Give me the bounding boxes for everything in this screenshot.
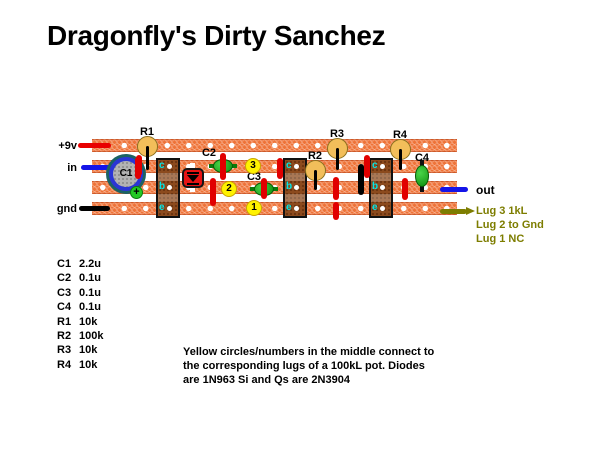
jumper-red-6 [364,155,370,178]
parts-row: C12.2u [57,258,103,272]
diode-d1 [182,168,204,188]
output-label: out [476,184,495,196]
jumper-red-4 [333,177,339,200]
q3-base-pin-label: b [372,182,378,192]
parts-row: R410k [57,359,103,373]
part-value: 10k [79,316,97,330]
pin-hole [380,164,385,169]
part-ref: C3 [57,287,79,301]
capacitor-c2-label: C2 [195,147,223,159]
part-ref: R1 [57,316,79,330]
lug3-label: Lug 3 1kL [476,205,527,218]
part-value: 0.1u [79,272,101,286]
resistor-r3-lead [336,148,339,170]
jumper-red-3 [277,158,283,179]
part-value: 0.1u [79,287,101,301]
q3-emitter-pin-label: e [372,203,378,213]
capacitor-c4-label: C4 [408,152,436,164]
capacitor-c4 [415,160,429,192]
gap-band [371,173,391,181]
transistor-q1: c b e [156,158,180,218]
resistor-r4-lead [399,149,402,170]
jumper-red-1 [135,157,141,179]
input-label: in [40,162,77,174]
part-ref: C4 [57,301,79,315]
ground-label: gnd [40,203,77,215]
power-label: +9v [40,140,77,152]
part-value: 0.1u [79,301,101,315]
part-ref: R4 [57,359,79,373]
gap-band [158,194,178,202]
pin-hole [294,185,299,190]
lug1-label: Lug 1 NC [476,233,524,246]
q1-emitter-pin-label: e [159,203,165,213]
resistor-r1-label: R1 [132,126,162,138]
transistor-q2: c b e [283,158,307,218]
pot-lug-wire [440,209,467,214]
jumper-red-2 [210,178,216,206]
gap-band [285,173,305,181]
resistor-r3-label: R3 [322,128,352,140]
resistor-r2-lead [314,170,317,190]
ground-wire [79,206,110,211]
gap-band [371,194,391,202]
build-note-line: the corresponding lugs of a 100kL pot. D… [183,359,513,373]
diode-symbol-bar-top [187,172,199,174]
parts-row: C20.1u [57,272,103,286]
diode-symbol-bar-bottom [187,183,199,185]
part-ref: R2 [57,330,79,344]
jumper-red-7 [402,178,408,200]
gap-band [158,173,178,181]
q2-emitter-pin-label: e [286,203,292,213]
q1-base-pin-label: b [159,182,165,192]
parts-row: C40.1u [57,301,103,315]
q2-collector-pin-label: c [286,161,292,171]
parts-row: R310k [57,344,103,358]
diode-symbol-triangle [187,175,199,182]
pot-lug-wire-arrow [466,207,475,215]
part-value: 10k [79,344,97,358]
gap-band [285,194,305,202]
build-note-line: are 1N963 Si and Qs are 2N3904 [183,373,513,387]
parts-row: C30.1u [57,287,103,301]
pot-point-2: 2 [221,181,237,197]
pin-hole [167,164,172,169]
pin-hole [380,185,385,190]
q3-collector-pin-label: c [372,161,378,171]
resistor-r4-label: R4 [385,129,415,141]
part-value: 100k [79,330,103,344]
c1-polarity-marker: + [130,186,143,199]
pin-hole [294,164,299,169]
parts-row: R2100k [57,330,103,344]
parts-list: C12.2u C20.1u C30.1u C40.1u R110k R2100k… [57,258,103,373]
part-ref: C2 [57,272,79,286]
part-value: 2.2u [79,258,101,272]
pin-hole [167,206,172,211]
parts-row: R110k [57,316,103,330]
build-note-line: Yellow circles/numbers in the middle con… [183,345,513,359]
page-title: Dragonfly's Dirty Sanchez [47,20,385,52]
resistor-r2-label: R2 [300,150,330,162]
output-wire [440,187,468,192]
part-ref: R3 [57,344,79,358]
part-ref: C1 [57,258,79,272]
power-wire [78,143,111,148]
c4-body [415,165,429,187]
build-note: Yellow circles/numbers in the middle con… [183,345,513,387]
pot-point-1: 1 [246,200,262,216]
part-value: 10k [79,359,97,373]
pot-point-3: 3 [245,158,261,174]
transistor-q3: c b e [369,158,393,218]
stripboard-layout-page: Dragonfly's Dirty Sanchez +9v in gnd out… [0,0,600,450]
resistor-r1-lead [146,146,149,170]
jumper-red-5 [333,202,339,220]
pin-hole [380,206,385,211]
q2-base-pin-label: b [286,182,292,192]
pin-hole [294,206,299,211]
board-strip-4 [92,202,457,215]
lug2-label: Lug 2 to Gnd [476,219,544,232]
q1-collector-pin-label: c [159,161,165,171]
pin-hole [167,185,172,190]
